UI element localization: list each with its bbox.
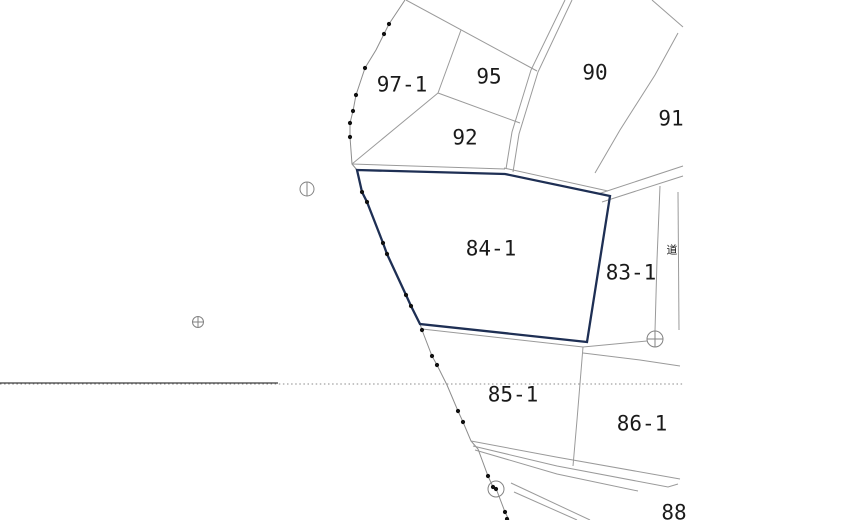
boundary-point-dot xyxy=(360,190,364,194)
boundary-point-dot xyxy=(420,328,424,332)
boundary-point-dots xyxy=(348,22,509,520)
boundary-point-dot xyxy=(456,409,460,413)
boundary-point-dot xyxy=(435,363,439,367)
boundary-point-dot xyxy=(486,474,490,478)
boundary-line xyxy=(406,0,537,71)
boundary-point-dot xyxy=(363,66,367,70)
survey-marker-circle-cross-icon xyxy=(647,331,663,347)
boundary-line xyxy=(652,0,683,27)
boundary-point-dot xyxy=(385,252,389,256)
boundary-point-dot xyxy=(348,135,352,139)
survey-markers xyxy=(193,182,664,497)
road-edge-line xyxy=(504,168,608,191)
parcel-label-92: 92 xyxy=(452,128,477,149)
boundary-point-dot xyxy=(351,109,355,113)
parcel-label-86-1: 86-1 xyxy=(617,414,668,435)
boundary-point-dot xyxy=(387,22,391,26)
road-edge-line xyxy=(506,0,565,169)
boundary-line xyxy=(595,33,678,173)
road-edge-line xyxy=(678,192,679,330)
road-edge-line xyxy=(514,492,577,520)
boundary-point-dot xyxy=(409,304,413,308)
survey-marker-circle-vline-icon xyxy=(300,182,314,196)
survey-marker-circle-cross-icon xyxy=(193,317,204,328)
parcel-label-85-1: 85-1 xyxy=(488,385,539,406)
parcel-label-95: 95 xyxy=(476,67,501,88)
boundary-point-dot xyxy=(430,354,434,358)
survey-marker-circle-dot-icon xyxy=(488,481,504,497)
boundary-point-dot xyxy=(348,121,352,125)
cadastral-map: 97-1 95 90 91 92 84-1 83-1 85-1 86-1 88 … xyxy=(0,0,850,520)
road-label: 道 xyxy=(667,245,678,256)
boundary-line xyxy=(352,164,505,169)
road-edge-line xyxy=(655,186,660,331)
boundary-point-dot xyxy=(382,32,386,36)
boundary-line xyxy=(573,347,583,466)
road-edge-line xyxy=(475,450,638,491)
boundary-line xyxy=(438,30,461,93)
parcel-label-84-1: 84-1 xyxy=(466,239,517,260)
road-edge-line xyxy=(513,0,572,172)
parcel-label-91: 91 xyxy=(658,109,683,130)
road-edge-line xyxy=(471,441,680,479)
road-edge-line xyxy=(583,353,680,366)
boundary-point-dot xyxy=(461,420,465,424)
parcel-label-88: 88 xyxy=(661,503,686,520)
boundary-line xyxy=(352,93,438,164)
boundary-point-dot xyxy=(503,510,507,514)
parcel-label-83-1: 83-1 xyxy=(606,263,657,284)
boundary-point-dot xyxy=(381,241,385,245)
road-edge-line xyxy=(511,483,590,520)
parcel-label-90: 90 xyxy=(582,63,607,84)
boundary-point-dot xyxy=(404,293,408,297)
road-edge-line xyxy=(473,446,678,487)
boundary-line xyxy=(422,329,647,347)
boundary-line xyxy=(438,93,520,123)
parcel-label-97-1: 97-1 xyxy=(377,75,428,96)
boundary-point-dot xyxy=(365,200,369,204)
boundary-point-dot xyxy=(354,93,358,97)
